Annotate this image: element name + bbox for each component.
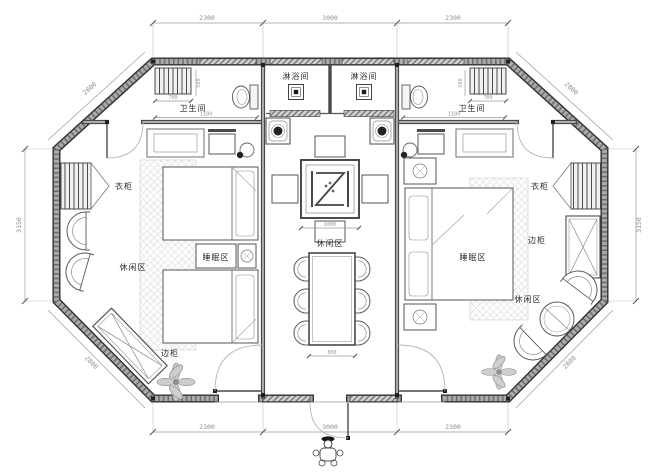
dimension-left: 3150 bbox=[15, 146, 53, 304]
dim-diag-tr: 2800 bbox=[563, 80, 580, 96]
dining-chair bbox=[356, 257, 371, 281]
dim-top-left: 2300 bbox=[199, 14, 215, 22]
label-sleep-left: 睡眠区 bbox=[203, 253, 230, 262]
door-bath-right bbox=[517, 120, 555, 158]
tea-chair-right bbox=[362, 175, 388, 203]
dining-chair bbox=[294, 289, 309, 313]
washbasin-left bbox=[266, 118, 290, 144]
dining-chair bbox=[356, 289, 371, 313]
desk-chair-left bbox=[208, 131, 236, 155]
dim-radiator-right: 700 bbox=[483, 95, 492, 101]
dim-bottom-right: 2300 bbox=[445, 423, 461, 431]
tea-chair-top bbox=[315, 136, 345, 157]
dining-table bbox=[309, 253, 355, 345]
label-bath-left: 卫生间 bbox=[180, 103, 207, 113]
label-sidecab-right: 边柜 bbox=[528, 235, 546, 245]
tv-stand-right bbox=[456, 129, 513, 157]
radiator-left bbox=[155, 68, 191, 94]
door-bath-left bbox=[105, 120, 143, 158]
kettle-right-icon bbox=[401, 152, 407, 158]
floor-drain-icon bbox=[289, 85, 304, 100]
dim-left: 3150 bbox=[15, 217, 23, 233]
dim-right: 3150 bbox=[635, 217, 643, 233]
label-sleep-right: 睡眠区 bbox=[460, 253, 487, 262]
dining-chair bbox=[294, 321, 309, 345]
label-sidecab-left: 边柜 bbox=[161, 348, 179, 358]
bathroom-right: 700 500 1100 卫生间 bbox=[401, 68, 508, 120]
label-shower-right: 淋浴间 bbox=[351, 71, 378, 81]
armchair-left-1 bbox=[67, 212, 90, 250]
bathroom-left: 700 500 1100 卫生间 bbox=[153, 68, 259, 120]
washbasin-right bbox=[370, 118, 394, 144]
right-bedroom: 睡眠区 衣柜 边柜 休闲区 bbox=[401, 129, 605, 389]
dim-radiator-left-h: 500 bbox=[196, 78, 202, 87]
wardrobe-left bbox=[61, 163, 109, 209]
tea-table bbox=[301, 160, 359, 218]
dining-chair bbox=[356, 321, 371, 345]
wardrobe-right bbox=[553, 163, 601, 209]
floor-plan: 2300 3000 2300 2300 3000 2300 3150 3150 … bbox=[0, 0, 651, 473]
tea-chair-left bbox=[272, 175, 298, 203]
plant-right-icon bbox=[482, 355, 517, 390]
dining-chair bbox=[294, 257, 309, 281]
dim-bottom-left: 2300 bbox=[199, 423, 215, 431]
dim-tea-table: 1000 bbox=[324, 222, 337, 228]
round-table-right bbox=[540, 302, 574, 336]
floor-drain-icon bbox=[357, 85, 372, 100]
dimension-bottom: 2300 3000 2300 bbox=[150, 398, 511, 435]
dim-diag-tl: 2800 bbox=[81, 80, 98, 96]
label-lounge-left: 休闲区 bbox=[120, 262, 147, 272]
floor-plan-canvas: 2300 3000 2300 2300 3000 2300 3150 3150 … bbox=[0, 0, 651, 473]
side-cabinet-right bbox=[566, 216, 600, 278]
dim-radiator-right-h: 500 bbox=[458, 78, 464, 87]
radiator-right bbox=[470, 68, 506, 94]
dimension-top: 2300 3000 2300 bbox=[150, 14, 511, 64]
center-lounge: 1000 休闲区 800 bbox=[266, 118, 394, 358]
kettle-left-icon bbox=[237, 152, 243, 158]
label-lounge-center: 休闲区 bbox=[317, 238, 344, 248]
nightstand-right-top bbox=[404, 158, 436, 184]
desk-chair-right bbox=[417, 131, 445, 155]
dimension-right: 3150 bbox=[608, 146, 643, 304]
label-wardrobe-left: 衣柜 bbox=[115, 181, 133, 191]
bed-left-2 bbox=[163, 270, 258, 343]
dim-bottom-center: 3000 bbox=[322, 423, 338, 431]
dim-diag-bl: 2800 bbox=[83, 354, 100, 371]
label-lounge-right: 休闲区 bbox=[515, 294, 542, 304]
tv-stand-left bbox=[147, 129, 204, 157]
dim-diag-br: 2800 bbox=[561, 354, 578, 371]
dim-top-center: 3000 bbox=[322, 14, 338, 22]
dim-dining-table: 800 bbox=[327, 350, 336, 356]
nightstand-right-bottom bbox=[404, 304, 436, 330]
dim-top-right: 2300 bbox=[445, 14, 461, 22]
door-bedroom-right bbox=[398, 345, 447, 393]
toilet-left bbox=[233, 85, 259, 109]
label-bath-right: 卫生间 bbox=[459, 103, 486, 113]
label-wardrobe-right: 衣柜 bbox=[531, 181, 549, 191]
bed-left-1 bbox=[163, 167, 258, 240]
bed-right bbox=[405, 188, 513, 300]
label-shower-left: 淋浴间 bbox=[283, 71, 310, 81]
door-bedroom-left bbox=[213, 345, 262, 393]
armchair-left-2 bbox=[61, 248, 94, 291]
door-entrance bbox=[310, 403, 350, 440]
toilet-right bbox=[402, 85, 428, 109]
dim-radiator-left: 700 bbox=[168, 95, 177, 101]
entry-figure-icon bbox=[313, 436, 343, 466]
